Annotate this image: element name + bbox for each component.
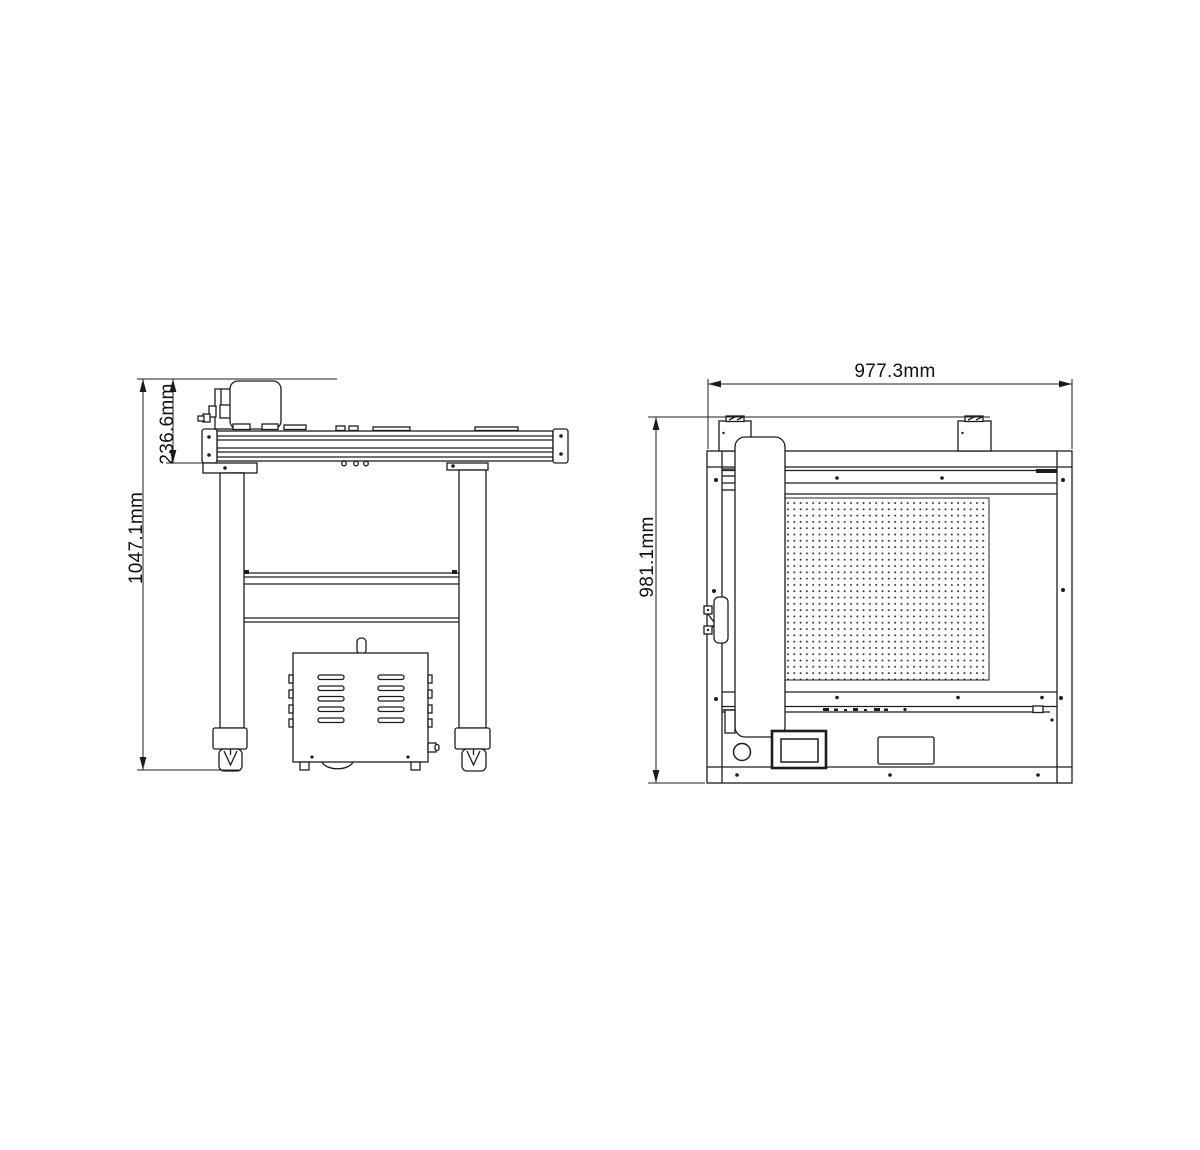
dim-label-overall-depth: 981.1mm [637, 516, 658, 597]
cutting-head [198, 381, 306, 430]
dim-label-overall-width: 977.3mm [854, 361, 935, 382]
motor-right [958, 421, 991, 451]
side-view: 1047.1mm 236.6mm [126, 379, 568, 771]
control-box [289, 638, 439, 770]
dim-label-table-top-height: 236.6mm [157, 383, 178, 464]
leg-right [459, 470, 486, 728]
top-view: 977.3mm 981.1mm [637, 361, 1072, 783]
technical-drawing-page: 1047.1mm 236.6mm [0, 0, 1200, 1150]
beam-end-cap-right [553, 429, 568, 463]
antenna [357, 638, 366, 654]
caster-right [455, 728, 490, 771]
dim-label-overall-height: 1047.1mm [126, 492, 147, 584]
beam-end-cap-left [202, 429, 217, 463]
leg-left [220, 473, 244, 728]
leg-mount-left [203, 463, 257, 473]
connector-panel [878, 737, 934, 764]
flatbed-cutter-dimension-drawing: 1047.1mm 236.6mm [0, 0, 1200, 1150]
perforated-work-table [783, 498, 989, 680]
power-button [734, 744, 751, 761]
caster-left [213, 728, 247, 771]
head-cover [230, 381, 281, 429]
display-screen [781, 739, 818, 762]
cross-members [244, 570, 459, 622]
table-beam [202, 426, 568, 466]
